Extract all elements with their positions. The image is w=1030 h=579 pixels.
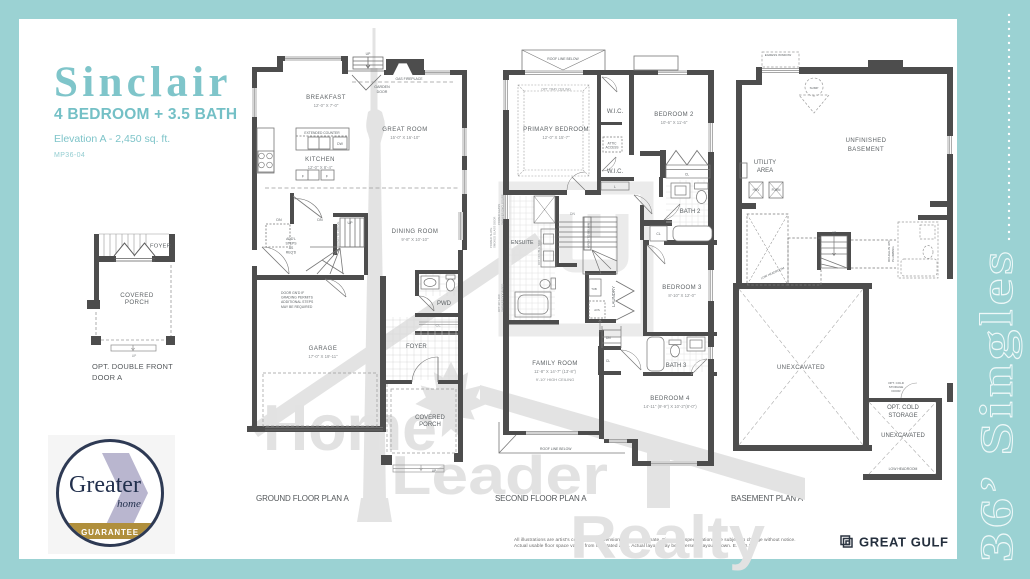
svg-text:PRIMARY BEDROOM: PRIMARY BEDROOM — [523, 127, 589, 133]
svg-text:OPT DOUBLE SINK: OPT DOUBLE SINK — [537, 240, 541, 265]
svg-text:CL: CL — [685, 173, 689, 177]
svg-text:Realty: Realty — [570, 504, 766, 571]
svg-text:DN: DN — [570, 212, 575, 216]
svg-text:COVERED: COVERED — [415, 415, 445, 421]
svg-text:EXTENDED COUNTER: EXTENDED COUNTER — [304, 131, 340, 135]
svg-text:SHOWER ENCLOSURE: SHOWER ENCLOSURE — [501, 194, 505, 225]
svg-text:UNFINISHED: UNFINISHED — [846, 138, 887, 144]
svg-text:OPT. TRAY CEILING: OPT. TRAY CEILING — [541, 88, 571, 92]
svg-text:12'-0" X 7'-0": 12'-0" X 7'-0" — [314, 103, 339, 108]
svg-text:KITCHEN: KITCHEN — [305, 157, 335, 163]
svg-text:DINING ROOM: DINING ROOM — [392, 229, 439, 235]
svg-text:DW: DW — [337, 142, 343, 146]
svg-text:OPEN TO BELOW: OPEN TO BELOW — [587, 223, 591, 248]
svg-text:F: F — [326, 175, 329, 179]
svg-text:PLUMBING: PLUMBING — [891, 246, 895, 262]
svg-text:BEDROOM 2: BEDROOM 2 — [654, 112, 694, 118]
svg-text:DN: DN — [317, 218, 323, 222]
svg-text:ADDITIONAL STEPS: ADDITIONAL STEPS — [281, 300, 314, 304]
svg-text:FOYER: FOYER — [406, 344, 427, 350]
svg-text:FAMILY ROOM: FAMILY ROOM — [532, 361, 578, 367]
svg-text:LOW HEADROOM: LOW HEADROOM — [760, 266, 785, 281]
svg-text:SUMP: SUMP — [810, 86, 819, 90]
svg-text:10'-6" X 11'-6": 10'-6" X 11'-6" — [661, 120, 688, 125]
svg-text:12'-0" X 8'-4": 12'-0" X 8'-4" — [308, 165, 333, 170]
svg-text:11'-8" X 14'-7" (13'-8"): 11'-8" X 14'-7" (13'-8") — [534, 369, 576, 374]
svg-text:OPT. COLD: OPT. COLD — [887, 405, 919, 411]
svg-text:GARDEN: GARDEN — [374, 85, 390, 89]
svg-text:GAS FIREPLACE: GAS FIREPLACE — [396, 77, 424, 81]
svg-text:UP: UP — [832, 231, 836, 235]
svg-text:BEDROOM 4: BEDROOM 4 — [650, 396, 690, 402]
svg-text:ROOF LINE BELOW: ROOF LINE BELOW — [540, 447, 572, 451]
svg-text:OPEN TO ABOVE: OPEN TO ABOVE — [336, 222, 340, 246]
svg-text:CL: CL — [656, 232, 660, 236]
svg-text:STEPS: STEPS — [285, 242, 297, 246]
svg-text:GRADING PERMITS: GRADING PERMITS — [281, 296, 314, 300]
svg-text:DOOR: DOOR — [377, 90, 388, 94]
svg-text:AREA: AREA — [757, 168, 773, 174]
svg-text:EGRESS WINDOW: EGRESS WINDOW — [765, 53, 792, 57]
svg-text:PWD: PWD — [437, 301, 452, 307]
svg-text:UNEXCAVATED: UNEXCAVATED — [881, 433, 925, 439]
svg-text:W.I.C.: W.I.C. — [607, 109, 624, 115]
svg-text:9'-10" HIGH CEILING: 9'-10" HIGH CEILING — [536, 377, 574, 382]
svg-text:8'-10" X 12'-0": 8'-10" X 12'-0" — [668, 293, 696, 298]
svg-text:UP: UP — [348, 221, 354, 225]
svg-text:UP: UP — [432, 469, 436, 473]
svg-text:CL: CL — [435, 323, 441, 328]
svg-text:UP: UP — [366, 52, 371, 56]
svg-text:DOOR: DOOR — [892, 389, 902, 393]
svg-text:SHOWER DOOR BED: SHOWER DOOR BED — [501, 284, 505, 312]
svg-text:BREAKFAST: BREAKFAST — [306, 95, 346, 101]
svg-text:REQ'D: REQ'D — [286, 251, 297, 255]
svg-text:AS: AS — [289, 246, 294, 250]
svg-text:DOOR GN'D IF: DOOR GN'D IF — [281, 291, 304, 295]
svg-text:ACCESS: ACCESS — [605, 146, 618, 150]
svg-text:LOW HEADROOM: LOW HEADROOM — [889, 467, 918, 471]
svg-text:ADD'L: ADD'L — [286, 237, 296, 241]
svg-text:AVS: AVS — [594, 308, 600, 312]
svg-text:GREAT ROOM: GREAT ROOM — [382, 127, 427, 133]
svg-text:SMOKED GLASS DOOR: SMOKED GLASS DOOR — [493, 217, 497, 248]
svg-text:UNEXCAVATED: UNEXCAVATED — [777, 365, 825, 371]
svg-text:MAY BE REQUIRED: MAY BE REQUIRED — [281, 305, 313, 309]
svg-text:STORAGE: STORAGE — [888, 413, 917, 419]
svg-text:W.I.C.: W.I.C. — [607, 169, 624, 175]
svg-text:FOYER: FOYER — [150, 244, 171, 250]
svg-text:ENSUITE: ENSUITE — [511, 240, 534, 246]
svg-text:FURN: FURN — [772, 188, 782, 192]
svg-text:BEDROOM 3: BEDROOM 3 — [662, 285, 702, 291]
svg-text:ROOF LINE BELOW: ROOF LINE BELOW — [547, 57, 579, 61]
svg-text:9'-8" X 10'-10": 9'-8" X 10'-10" — [401, 237, 429, 242]
svg-text:DN: DN — [276, 218, 282, 222]
svg-text:GARAGE: GARAGE — [309, 346, 338, 352]
svg-text:CL: CL — [606, 359, 610, 363]
svg-text:DN: DN — [606, 336, 611, 340]
svg-text:TUB: TUB — [591, 287, 597, 291]
svg-text:PORCH: PORCH — [125, 299, 149, 306]
svg-text:LAUNDRY: LAUNDRY — [611, 286, 616, 307]
svg-text:17'-0" X 19'-11": 17'-0" X 19'-11" — [308, 354, 338, 359]
svg-text:PORCH: PORCH — [419, 422, 441, 428]
svg-text:BATH 3: BATH 3 — [666, 363, 687, 369]
svg-text:F: F — [302, 175, 305, 179]
svg-text:UP: UP — [132, 354, 136, 358]
svg-text:COVERED: COVERED — [120, 292, 154, 299]
svg-text:14'-11" (9'-9") X 10'-2"(8'-0": 14'-11" (9'-9") X 10'-2"(8'-0") — [643, 404, 697, 409]
svg-text:UTILITY: UTILITY — [754, 160, 776, 166]
svg-text:BATH 2: BATH 2 — [680, 209, 701, 215]
svg-text:BASEMENT: BASEMENT — [848, 147, 884, 153]
svg-text:15'-0" X 16'-10": 15'-0" X 16'-10" — [390, 135, 420, 140]
svg-text:L: L — [614, 185, 616, 189]
svg-text:HRV: HRV — [753, 188, 761, 192]
svg-text:12'-0" X 15'-7": 12'-0" X 15'-7" — [542, 135, 570, 140]
